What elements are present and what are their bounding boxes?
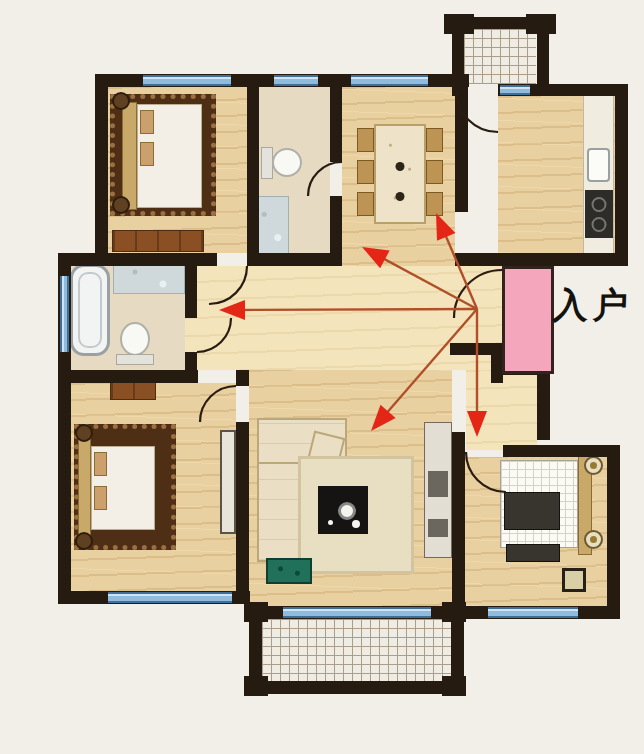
door-arcs	[197, 90, 506, 492]
arrow-to-south-bedroom-head	[467, 411, 487, 437]
bedroom3-door-arc	[466, 452, 506, 492]
arrow-group	[219, 213, 487, 437]
balcony-door-arc	[456, 90, 498, 132]
arrow-to-living-room-line	[380, 309, 477, 420]
arrow-to-west-bathroom-head	[219, 300, 245, 320]
annotation-overlay	[0, 0, 644, 754]
bedroom1-door-arc	[209, 266, 247, 304]
arrow-to-north-hall-head	[362, 247, 390, 268]
arrow-to-dining-room-head	[436, 213, 455, 241]
bathroom1-door-arc	[308, 162, 342, 196]
entrance-label: 入户	[552, 288, 633, 323]
arrow-to-west-bathroom-line	[233, 309, 477, 310]
bedroom2-door-arc	[200, 386, 236, 422]
arrow-to-north-hall-line	[374, 254, 477, 309]
bathroom2-door-arc	[197, 318, 231, 352]
floor-plan: 入户	[0, 0, 644, 754]
